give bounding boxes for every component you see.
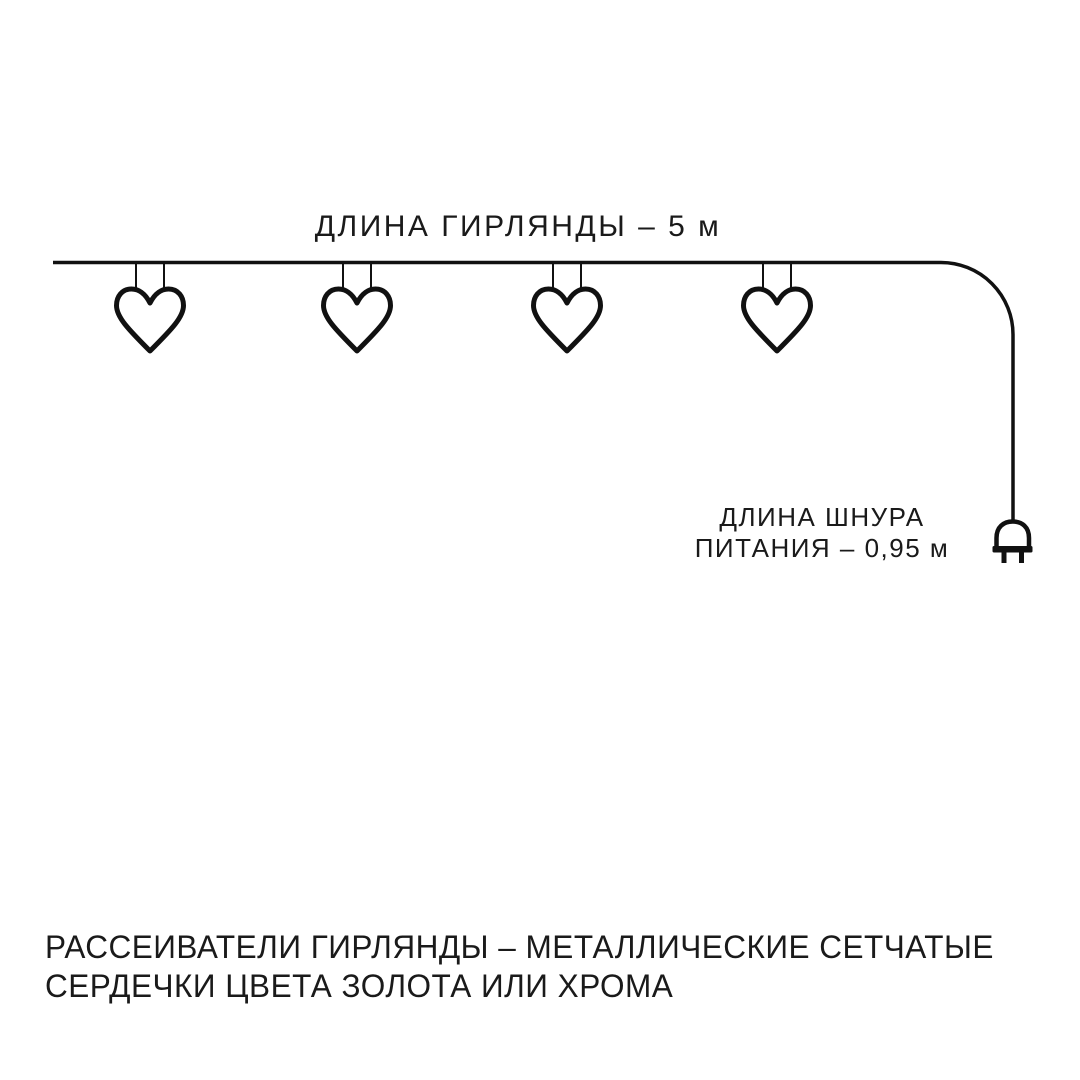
cord-length-label-line2: ПИТАНИЯ – 0,95 м: [662, 533, 982, 564]
description-text: РАССЕИВАТЕЛИ ГИРЛЯНДЫ – МЕТАЛЛИЧЕСКИЕ СЕ…: [45, 928, 994, 1005]
heart-icon: [324, 289, 391, 351]
power-plug-icon: [993, 522, 1033, 564]
cord-length-label-line1: ДЛИНА ШНУРА: [662, 502, 982, 533]
heart-icon: [534, 289, 601, 351]
plug-prong-right: [1019, 552, 1024, 563]
heart-diffuser: [744, 263, 811, 351]
heart-diffuser: [324, 263, 391, 351]
plug-prong-left: [1002, 552, 1007, 563]
heart-diffuser: [534, 263, 601, 351]
heart-icon: [117, 289, 184, 351]
heart-icon: [744, 289, 811, 351]
plug-body: [997, 522, 1030, 550]
description-line1: РАССЕИВАТЕЛИ ГИРЛЯНДЫ – МЕТАЛЛИЧЕСКИЕ СЕ…: [45, 928, 994, 967]
garland-length-label: ДЛИНА ГИРЛЯНДЫ – 5 м: [0, 210, 1036, 244]
description-line2: СЕРДЕЧКИ ЦВЕТА ЗОЛОТА ИЛИ ХРОМА: [45, 967, 994, 1006]
plug-base: [993, 546, 1033, 553]
cord-length-label: ДЛИНА ШНУРА ПИТАНИЯ – 0,95 м: [662, 502, 982, 564]
heart-diffuser: [117, 263, 184, 351]
infographic: ДЛИНА ГИРЛЯНДЫ – 5 м ДЛИНА ШНУРА ПИТАНИЯ…: [0, 0, 1080, 1080]
